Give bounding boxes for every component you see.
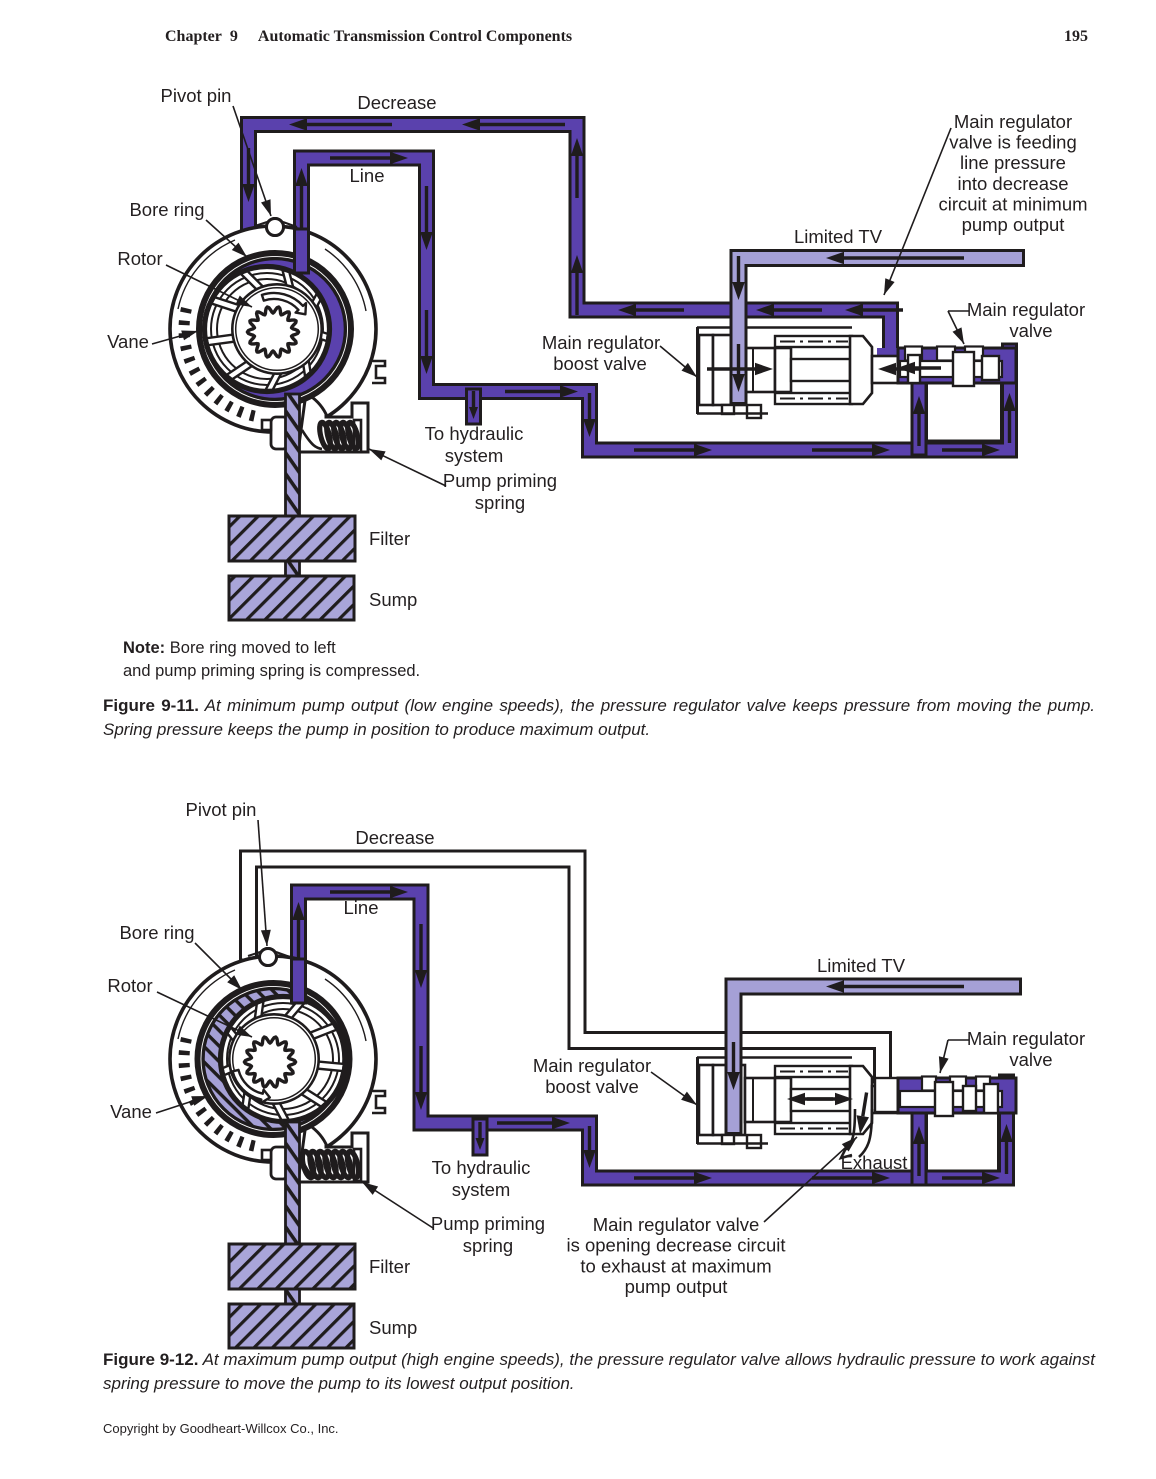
svg-text:Decrease: Decrease [355, 827, 434, 848]
svg-text:Main regulator: Main regulator [954, 111, 1072, 132]
svg-text:Vane: Vane [110, 1101, 152, 1122]
svg-text:Line: Line [350, 165, 385, 186]
svg-text:Main regulator: Main regulator [967, 1028, 1085, 1049]
svg-text:circuit at minimum: circuit at minimum [938, 193, 1087, 214]
svg-text:Pivot pin: Pivot pin [186, 799, 257, 820]
svg-text:Rotor: Rotor [107, 975, 152, 996]
svg-text:valve is feeding: valve is feeding [949, 132, 1077, 153]
svg-text:Main regulator valve: Main regulator valve [593, 1214, 760, 1235]
svg-text:system: system [445, 445, 504, 466]
svg-text:Bore ring: Bore ring [129, 199, 204, 220]
svg-text:Filter: Filter [369, 528, 410, 549]
svg-text:line pressure: line pressure [960, 152, 1066, 173]
svg-text:boost valve: boost valve [553, 353, 647, 374]
svg-text:To hydraulic: To hydraulic [432, 1157, 531, 1178]
svg-text:Decrease: Decrease [357, 92, 436, 113]
svg-text:Rotor: Rotor [117, 248, 162, 269]
svg-text:Exhaust: Exhaust [841, 1152, 908, 1173]
svg-text:valve: valve [1009, 320, 1052, 341]
svg-text:Vane: Vane [107, 331, 149, 352]
svg-text:spring: spring [475, 492, 525, 513]
svg-text:Line: Line [344, 897, 379, 918]
svg-text:Limited TV: Limited TV [794, 226, 883, 247]
svg-text:Main regulator: Main regulator [542, 332, 660, 353]
svg-text:Pivot pin: Pivot pin [161, 85, 232, 106]
svg-text:Limited TV: Limited TV [817, 955, 906, 976]
svg-text:valve: valve [1009, 1049, 1052, 1070]
svg-text:Main regulator: Main regulator [967, 299, 1085, 320]
svg-text:system: system [452, 1179, 511, 1200]
svg-text:Pump priming: Pump priming [431, 1213, 545, 1234]
svg-text:Bore ring: Bore ring [119, 922, 194, 943]
svg-text:Main regulator: Main regulator [533, 1055, 651, 1076]
svg-text:is opening decrease circuit: is opening decrease circuit [566, 1235, 785, 1256]
svg-text:Pump priming: Pump priming [443, 470, 557, 491]
svg-text:pump output: pump output [625, 1276, 728, 1297]
svg-text:into decrease: into decrease [957, 173, 1068, 194]
svg-text:to exhaust at maximum: to exhaust at maximum [580, 1255, 771, 1276]
svg-text:To hydraulic: To hydraulic [425, 423, 524, 444]
svg-text:boost valve: boost valve [545, 1076, 639, 1097]
svg-text:Sump: Sump [369, 589, 417, 610]
svg-text:Filter: Filter [369, 1256, 410, 1277]
svg-text:Sump: Sump [369, 1317, 417, 1338]
svg-text:pump output: pump output [962, 214, 1065, 235]
svg-text:spring: spring [463, 1235, 513, 1256]
